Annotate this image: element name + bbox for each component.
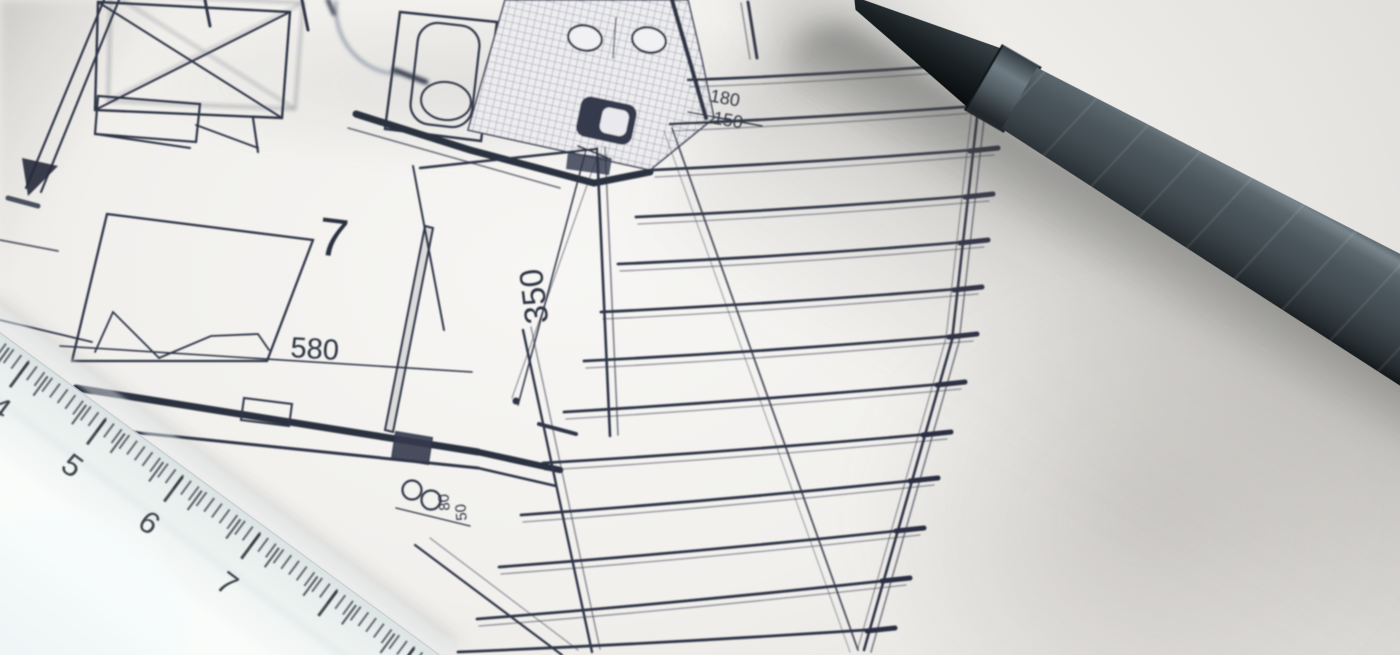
dim-width-label: 580 xyxy=(290,332,340,367)
wall-mullion-bar xyxy=(0,0,119,251)
door-leaf xyxy=(385,166,444,432)
dim-depth-label: 350 xyxy=(512,267,555,326)
dim-detail-top-label: 80 xyxy=(435,493,453,511)
ruler: 4 5 6 7 xyxy=(0,300,454,655)
photo-stage: 7 580 350 180 150 80 50 xyxy=(0,0,1400,655)
dim-detail-bottom-label: 50 xyxy=(452,503,470,521)
room-number-label: 7 xyxy=(315,206,352,269)
bedroom-furniture xyxy=(72,214,313,361)
cabinet-outline xyxy=(95,0,308,152)
